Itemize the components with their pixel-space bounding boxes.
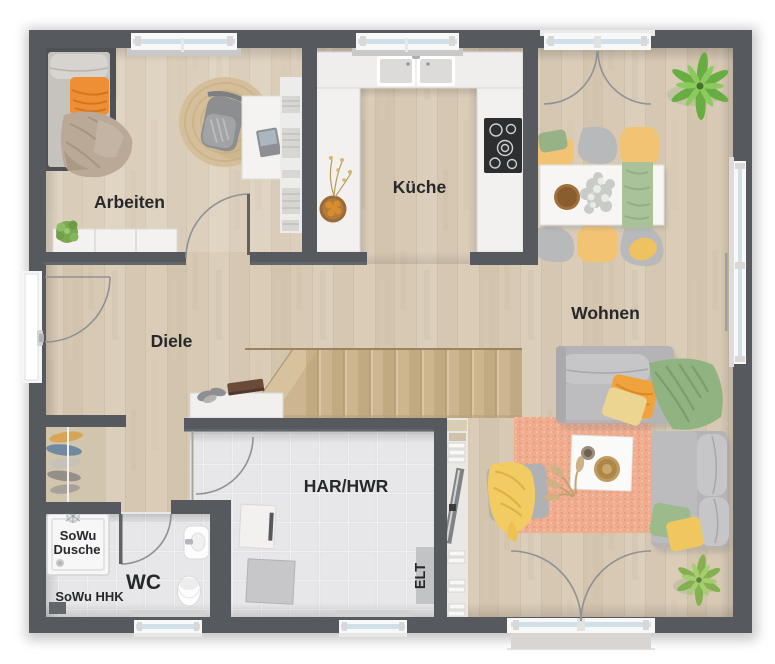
svg-text:ELT: ELT bbox=[413, 563, 429, 589]
svg-text:Küche: Küche bbox=[393, 177, 447, 197]
svg-text:Wohnen: Wohnen bbox=[571, 303, 640, 323]
svg-text:SoWu: SoWu bbox=[60, 528, 97, 543]
svg-text:Arbeiten: Arbeiten bbox=[94, 192, 165, 212]
svg-text:Diele: Diele bbox=[151, 331, 193, 351]
svg-text:Dusche: Dusche bbox=[54, 542, 101, 557]
svg-text:WC: WC bbox=[126, 571, 161, 594]
svg-text:SoWu HHK: SoWu HHK bbox=[55, 589, 124, 604]
svg-text:HAR/HWR: HAR/HWR bbox=[304, 476, 389, 496]
